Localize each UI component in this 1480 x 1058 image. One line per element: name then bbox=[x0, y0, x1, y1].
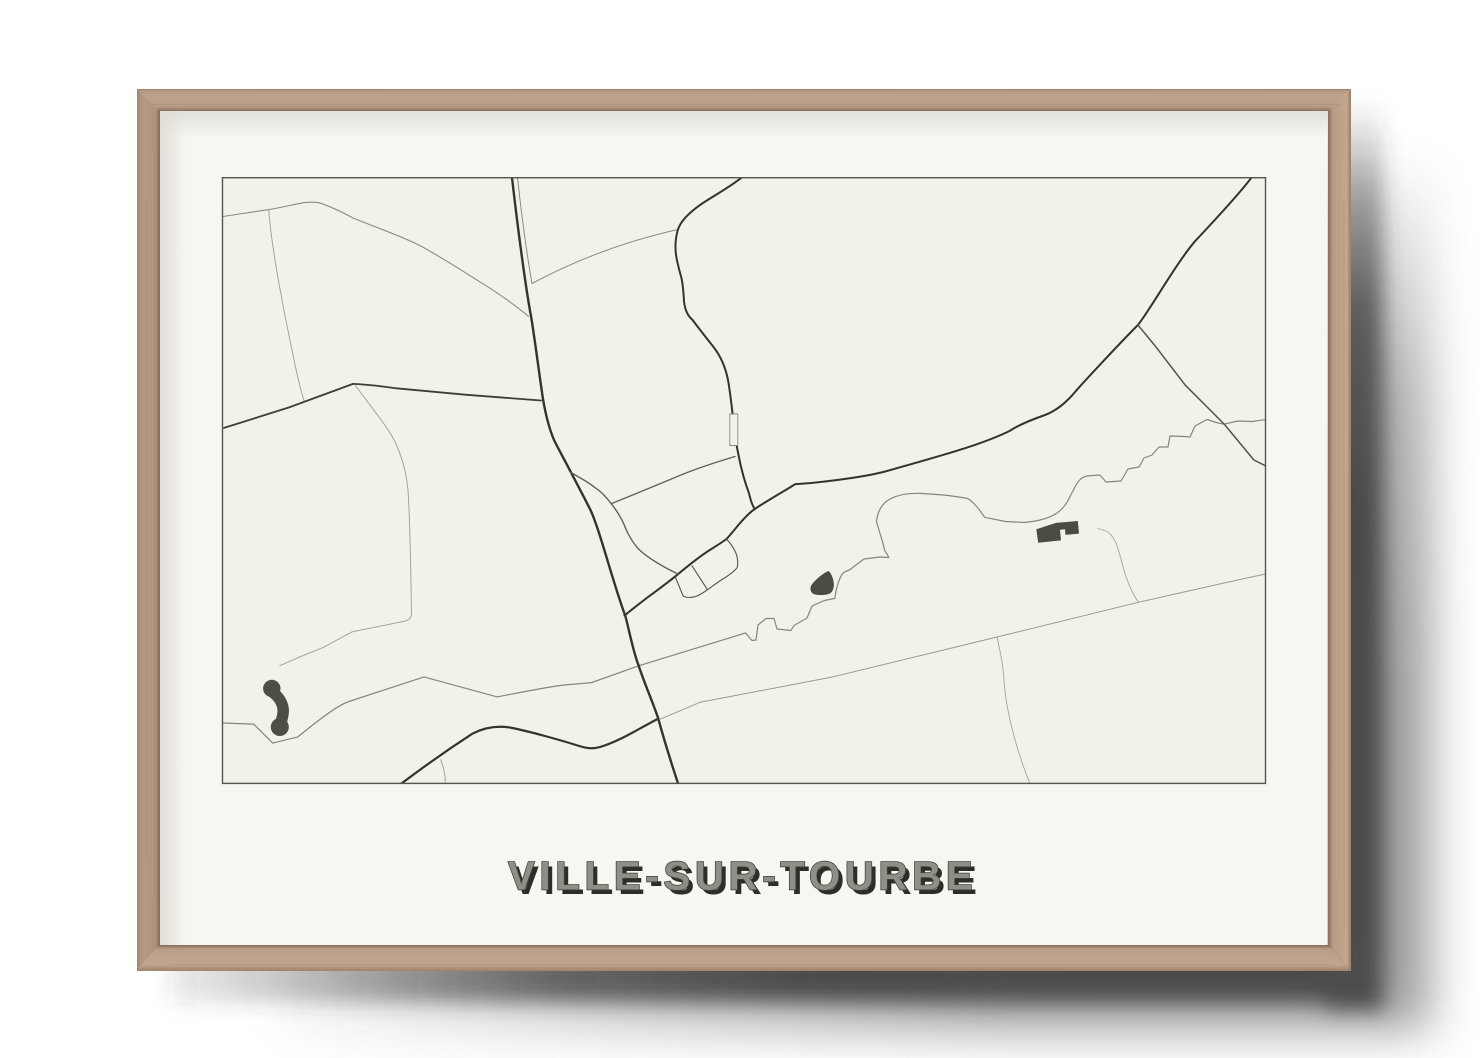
svg-text:VILLE-SUR-TOURBE: VILLE-SUR-TOURBE bbox=[508, 855, 977, 899]
